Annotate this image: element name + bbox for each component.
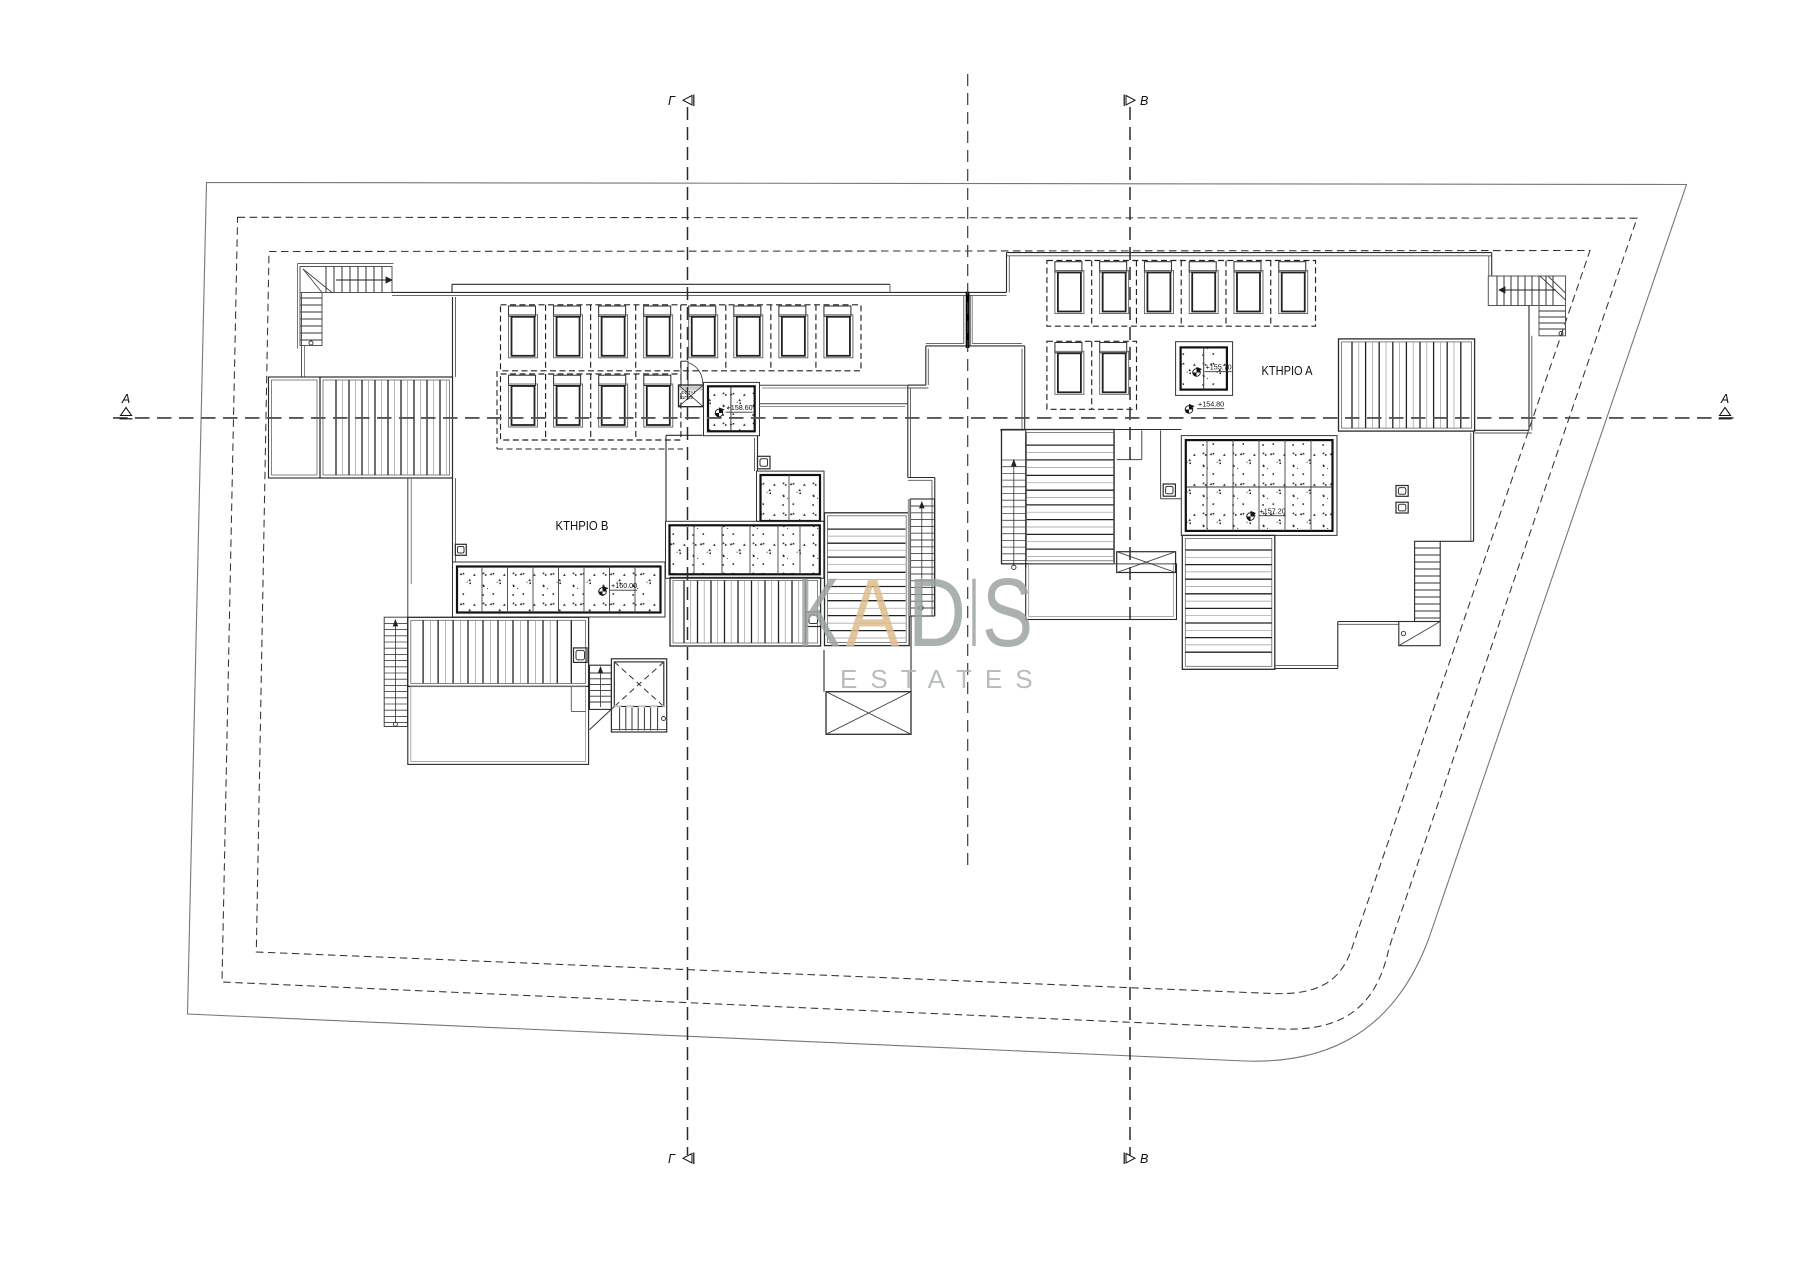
svg-text:+158.60: +158.60 bbox=[727, 403, 753, 412]
svg-text:Γ: Γ bbox=[668, 1152, 676, 1166]
svg-text:B: B bbox=[1140, 1152, 1148, 1166]
svg-text:Γ: Γ bbox=[668, 94, 676, 108]
svg-text:A: A bbox=[846, 558, 899, 667]
svg-text:+155.70: +155.70 bbox=[1206, 363, 1232, 372]
svg-text:K: K bbox=[797, 558, 840, 667]
svg-text:I: I bbox=[969, 558, 979, 667]
svg-text:+154.80: +154.80 bbox=[1198, 400, 1224, 409]
svg-text:S: S bbox=[982, 558, 1033, 667]
svg-text:A: A bbox=[1720, 392, 1729, 406]
svg-text:A: A bbox=[121, 392, 130, 406]
svg-text:B: B bbox=[1140, 94, 1148, 108]
svg-text:+160.00: +160.00 bbox=[611, 581, 637, 590]
svg-text:ESTATES: ESTATES bbox=[840, 664, 1046, 694]
svg-text:+157.20: +157.20 bbox=[1260, 507, 1286, 516]
svg-text:ΚΤΗΡΙΟ Α: ΚΤΗΡΙΟ Α bbox=[1262, 363, 1313, 378]
svg-text:D: D bbox=[908, 558, 966, 667]
svg-text:ΚΤΗΡΙΟ Β: ΚΤΗΡΙΟ Β bbox=[556, 518, 609, 533]
